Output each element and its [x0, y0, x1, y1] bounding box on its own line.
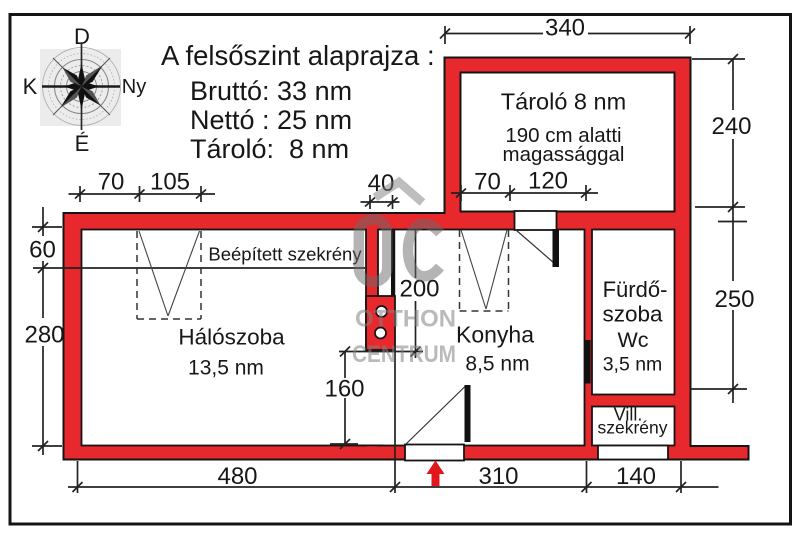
- svg-text:Konyha: Konyha: [456, 322, 534, 348]
- svg-text:K: K: [23, 74, 38, 99]
- svg-text:magassággal: magassággal: [503, 143, 625, 166]
- svg-text:szekrény: szekrény: [597, 418, 667, 438]
- svg-text:160: 160: [324, 376, 364, 403]
- svg-text:70: 70: [474, 169, 501, 196]
- svg-text:Tároló: 8 nm: Tároló: 8 nm: [190, 134, 349, 164]
- svg-text:Nettó : 25 nm: Nettó : 25 nm: [190, 105, 352, 135]
- svg-text:105: 105: [150, 169, 190, 196]
- svg-text:340: 340: [545, 15, 585, 42]
- svg-text:szoba: szoba: [602, 302, 663, 327]
- svg-text:310: 310: [478, 463, 518, 490]
- svg-text:Beépített szekrény: Beépített szekrény: [208, 244, 362, 265]
- svg-text:É: É: [75, 131, 90, 156]
- svg-text:Ny: Ny: [122, 76, 146, 98]
- svg-text:Bruttó: 33 nm: Bruttó: 33 nm: [190, 76, 352, 106]
- svg-text:60: 60: [29, 237, 56, 264]
- svg-text:Tároló 8 nm: Tároló 8 nm: [501, 89, 626, 115]
- svg-text:280: 280: [24, 322, 64, 349]
- svg-text:Wc: Wc: [617, 328, 648, 352]
- svg-text:13,5 nm: 13,5 nm: [188, 357, 264, 380]
- svg-text:480: 480: [217, 463, 257, 490]
- svg-text:8,5 nm: 8,5 nm: [465, 353, 529, 376]
- svg-text:70: 70: [98, 169, 125, 196]
- svg-text:CENTRUM: CENTRUM: [352, 341, 456, 368]
- svg-text:120: 120: [528, 168, 568, 195]
- svg-text:OTTHON: OTTHON: [355, 306, 456, 333]
- svg-text:Fürdő-: Fürdő-: [603, 277, 668, 302]
- svg-text:D: D: [74, 24, 90, 49]
- svg-text:3,5 nm: 3,5 nm: [603, 354, 663, 376]
- svg-text:A felsőszint alaprajza :: A felsőszint alaprajza :: [161, 40, 435, 71]
- svg-text:140: 140: [616, 463, 656, 490]
- svg-text:250: 250: [714, 286, 754, 313]
- svg-text:Hálószoba: Hálószoba: [178, 325, 285, 350]
- svg-text:240: 240: [711, 113, 751, 140]
